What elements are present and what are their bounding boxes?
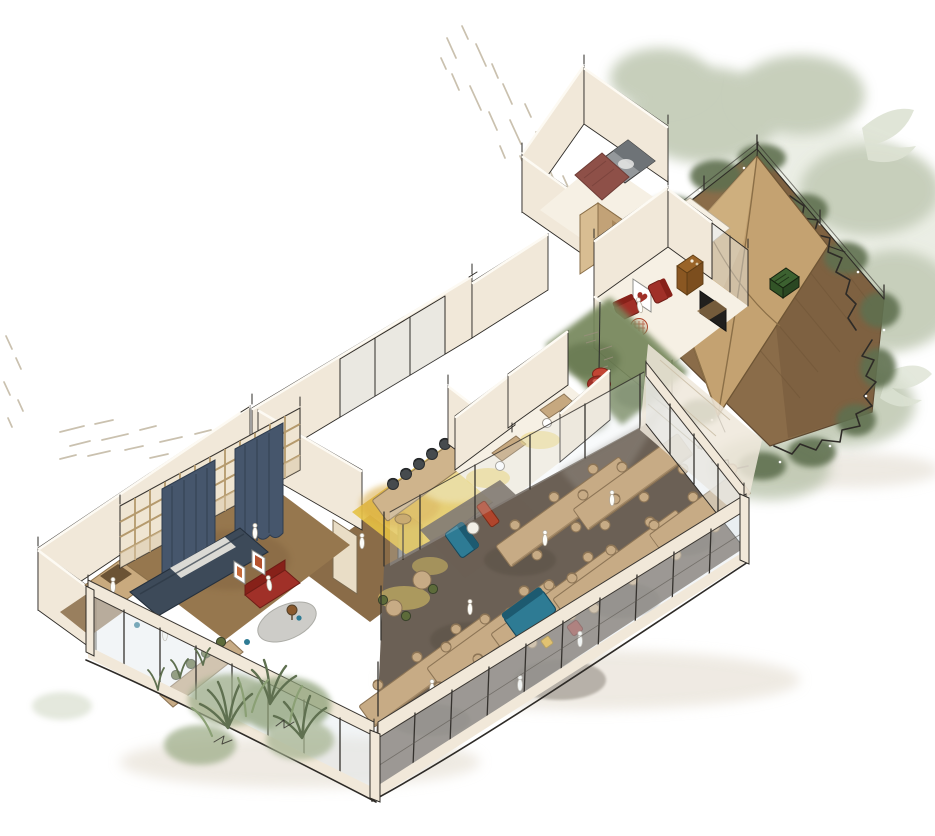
- person-figure: [253, 523, 258, 538]
- meeting-back-glazing: [340, 296, 445, 417]
- axonometric-illustration: Hand-drawn axonometric cutaway sketch of…: [0, 0, 935, 836]
- corner-post: [740, 494, 749, 564]
- person-figure: [360, 533, 365, 548]
- corner-post: [86, 586, 94, 656]
- hatch-cluster-edge: [4, 336, 23, 427]
- booth-table: [467, 522, 479, 534]
- foreground-plants: [32, 648, 334, 765]
- leaf-silhouette: [862, 109, 916, 162]
- corner-post: [370, 730, 380, 802]
- sketch-stage: Hand-drawn axonometric cutaway sketch of…: [0, 0, 935, 836]
- decor-object: [244, 639, 250, 645]
